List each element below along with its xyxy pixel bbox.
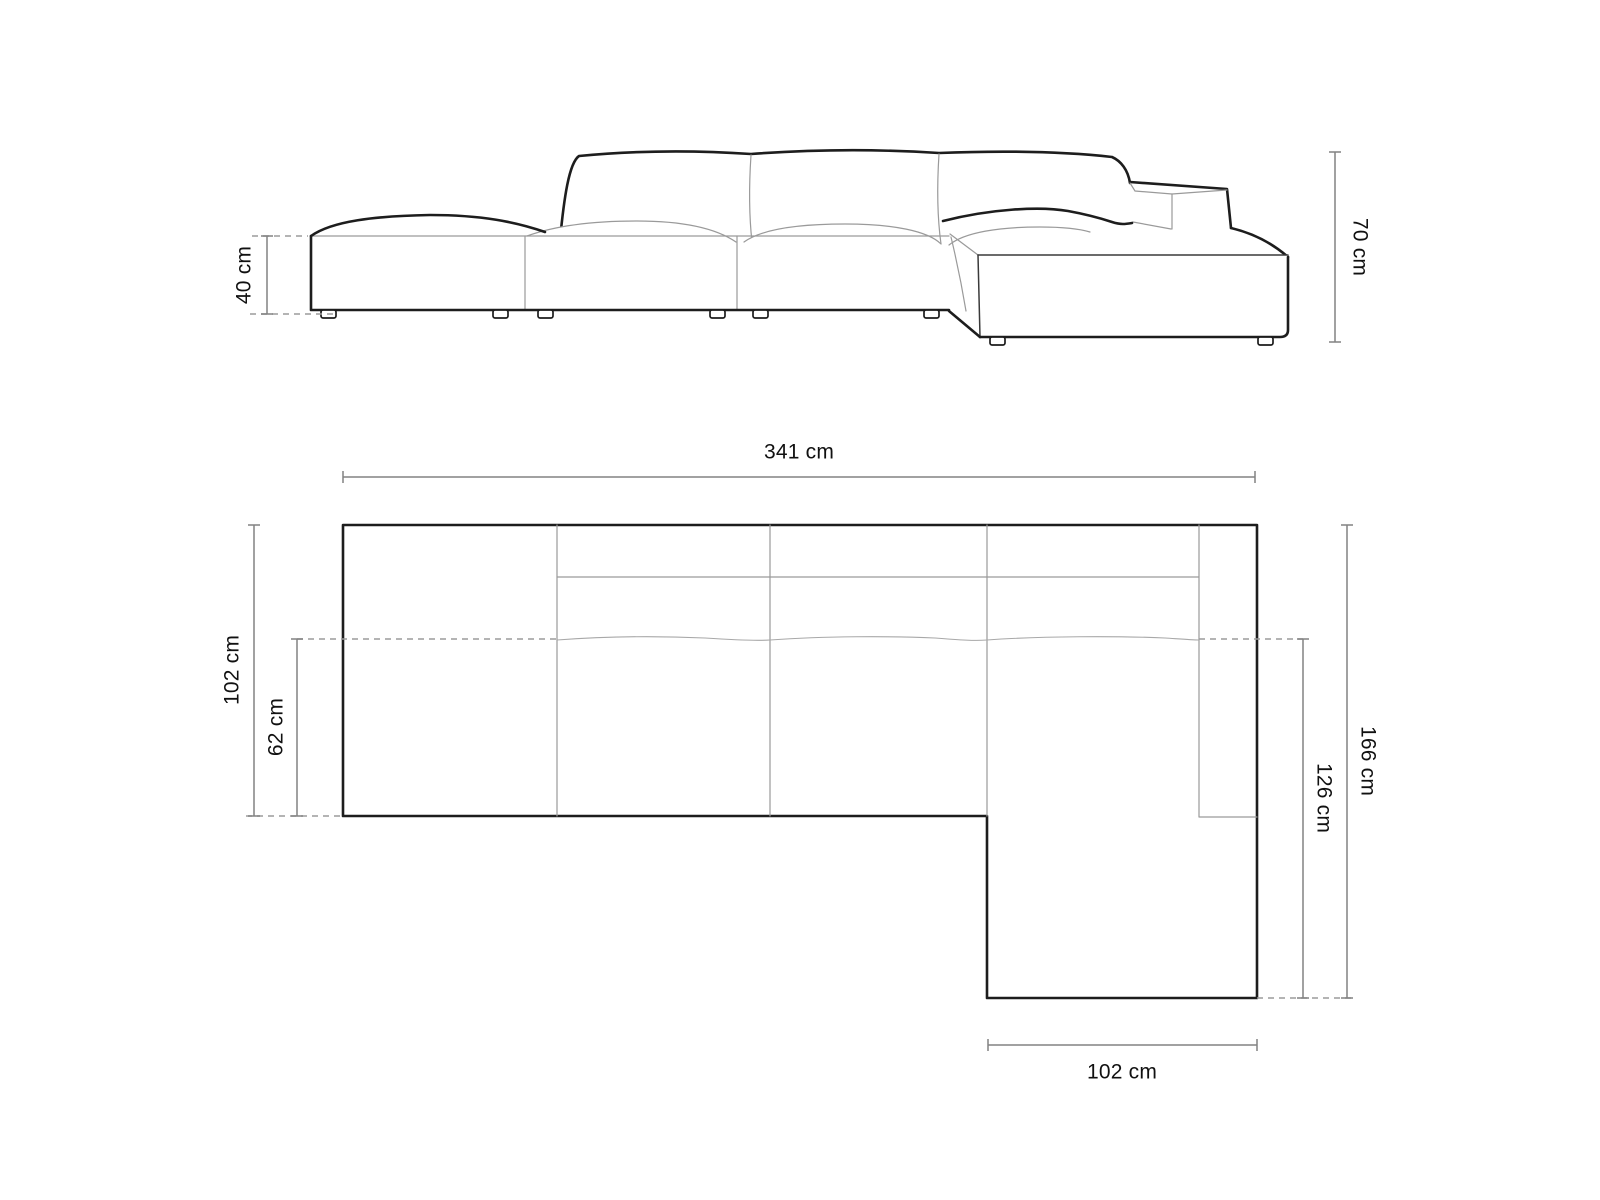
- chaise-junction-diagonal: [949, 311, 980, 337]
- foot: [924, 310, 939, 318]
- open-module-top-curve: [311, 215, 545, 236]
- overall-depth-label: 102 cm: [221, 635, 244, 705]
- chaise-inner-length-label: 126 cm: [1313, 763, 1336, 833]
- seat-height-label: 40 cm: [233, 246, 256, 304]
- drawing-canvas: 40 cm 70 cm 341 cm: [0, 0, 1600, 1200]
- dimension-line: [988, 1039, 1257, 1051]
- dimension-overall-length-right: 166 cm: [1341, 525, 1380, 998]
- dimension-line: [291, 639, 303, 816]
- plan-outer-contour: [343, 525, 1257, 998]
- sofa-chaise: [943, 209, 1288, 337]
- chaise-width-label: 102 cm: [1087, 1061, 1157, 1084]
- dimension-chaise-width: 102 cm: [988, 1039, 1257, 1084]
- foot: [710, 310, 725, 318]
- top-plan-view: 341 cm 102 cm 62 cm 126 cm 166 cm 102 cm: [221, 441, 1380, 1084]
- foot: [753, 310, 768, 318]
- sofa-dimensions-sheet: 40 cm 70 cm 341 cm: [0, 0, 1600, 1200]
- dimension-seat-height: 40 cm: [233, 236, 335, 314]
- backrest-seam-1: [750, 155, 752, 242]
- dimension-seat-depth: 62 cm: [265, 639, 304, 816]
- dimension-line: [261, 236, 273, 314]
- dimension-line: [1329, 152, 1341, 342]
- chaise-seat-sweep-right: [1231, 228, 1288, 257]
- dimension-overall-depth: 102 cm: [221, 525, 261, 816]
- dimension-overall-width: 341 cm: [343, 441, 1255, 484]
- plan-sofa-body: [343, 525, 1257, 998]
- seat-depth-label: 62 cm: [265, 698, 288, 756]
- sofa-seat-cushions: [527, 221, 1090, 256]
- foot: [538, 310, 553, 318]
- side-elevation-view: 40 cm 70 cm: [233, 150, 1372, 345]
- overall-length-right-label: 166 cm: [1357, 726, 1380, 796]
- dimension-line: [343, 471, 1255, 483]
- extension-line: [250, 236, 334, 314]
- dimension-overall-height: 70 cm: [1329, 152, 1372, 342]
- sofa-armrest: [1130, 182, 1231, 230]
- backrest-seam-2: [938, 154, 941, 244]
- dimension-line: [1341, 525, 1353, 998]
- overall-height-label: 70 cm: [1349, 218, 1372, 276]
- dimension-line: [248, 525, 260, 816]
- overall-width-label: 341 cm: [764, 441, 834, 464]
- chaise-seat-sweep-left: [943, 209, 1132, 224]
- foot: [493, 310, 508, 318]
- dimension-line: [1297, 639, 1309, 998]
- foot: [990, 337, 1005, 345]
- dimension-chaise-inner-length: 126 cm: [1297, 639, 1336, 998]
- foot: [1258, 337, 1273, 345]
